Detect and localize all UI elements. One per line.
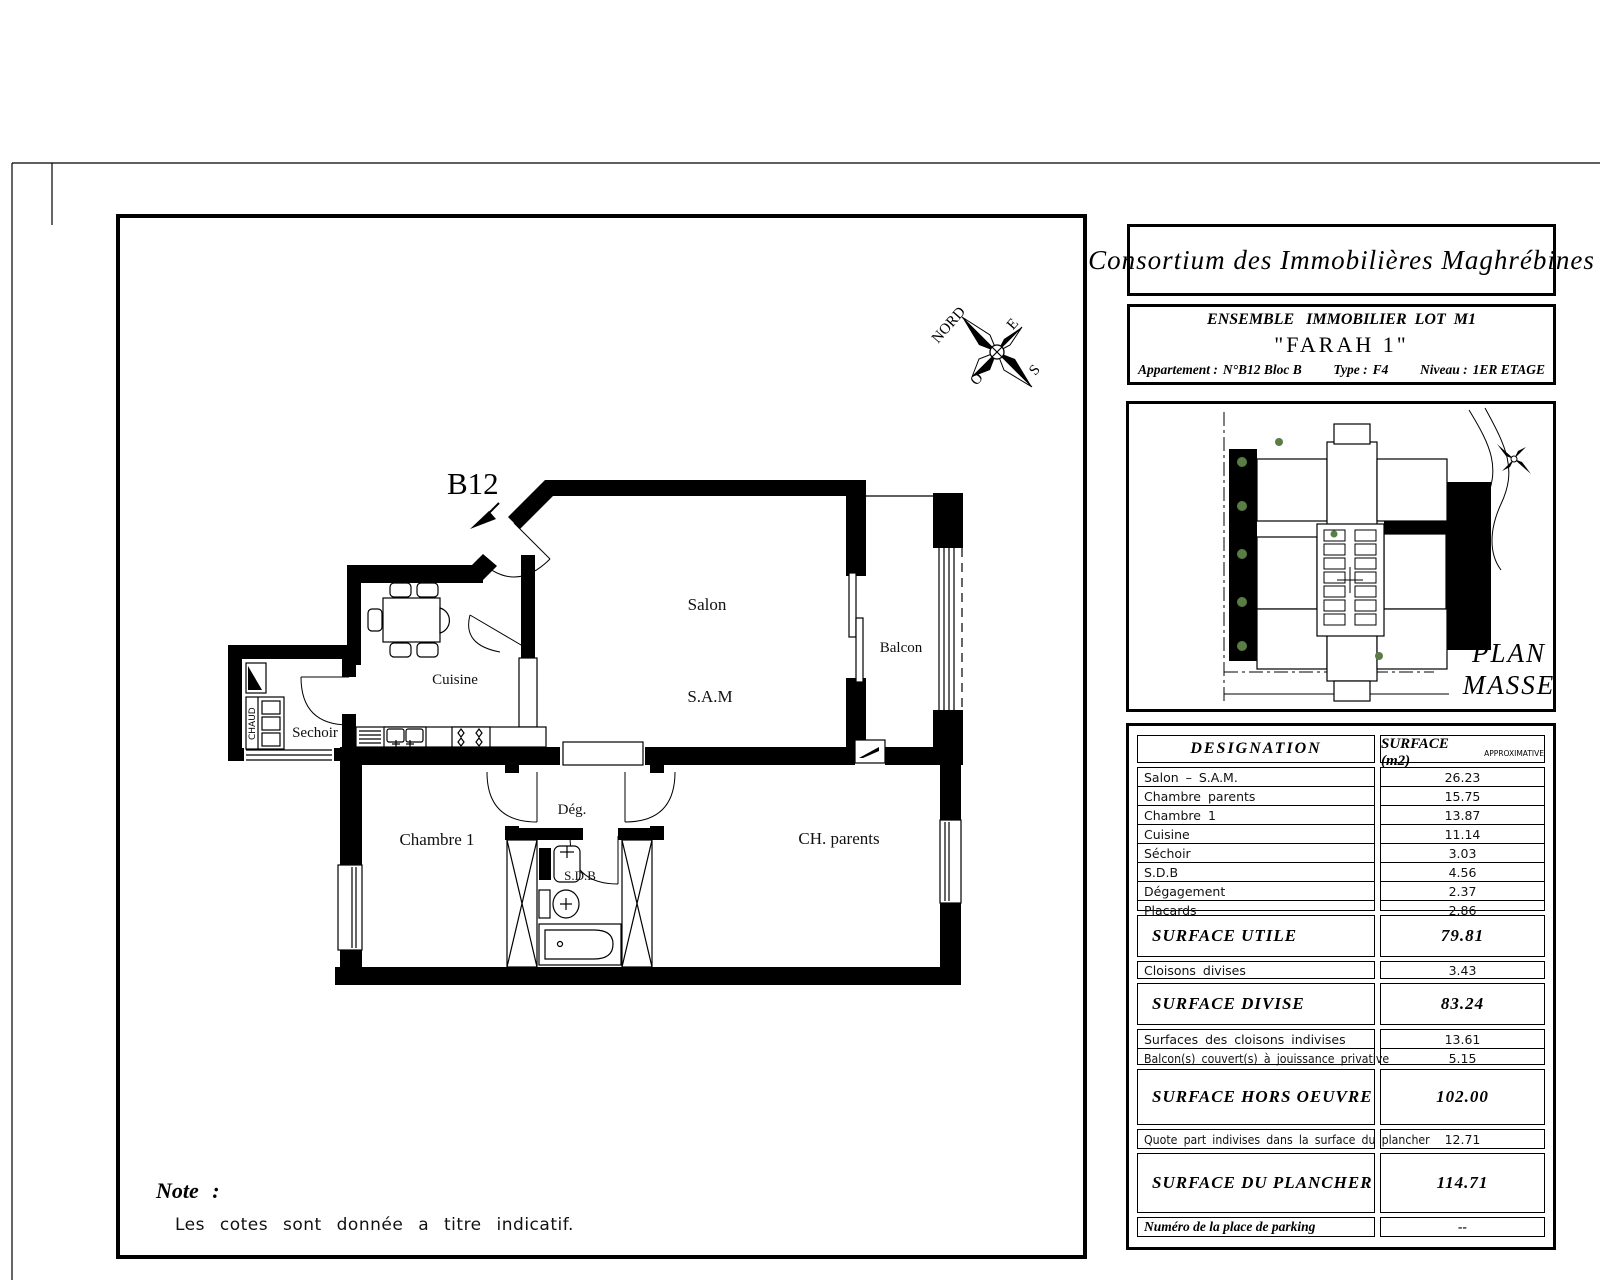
indivises-rows: Surfaces des cloisons indivises Balcon(s… bbox=[1137, 1029, 1545, 1065]
table-row: Surfaces des cloisons indivises bbox=[1138, 1030, 1374, 1048]
project-info-box: ENSEMBLE IMMOBILIER LOT M1 "FARAH 1" App… bbox=[1127, 304, 1556, 385]
room-label-sam: S.A.M bbox=[687, 687, 732, 706]
company-title-box: Consortium des Immobilières Maghrébines bbox=[1127, 224, 1556, 296]
compass-south-label: S bbox=[1026, 362, 1044, 379]
room-label-chambre1: Chambre 1 bbox=[399, 830, 474, 849]
drawing-sheet-page: { "sheet": { "unit_label": "B12", "note"… bbox=[0, 0, 1600, 1280]
unit-label: B12 bbox=[447, 466, 499, 501]
apartment-value: N°B12 Bloc B bbox=[1223, 362, 1302, 377]
site-plan-thumbnail: PLAN MASSE bbox=[1129, 404, 1553, 709]
compass-north-label: NORD bbox=[929, 304, 969, 347]
table-value: 5.15 bbox=[1381, 1048, 1544, 1067]
plan-masse-box: PLAN MASSE bbox=[1126, 401, 1556, 712]
surface-header: SURFACE (m2)APPROXIMATIVE bbox=[1381, 736, 1544, 770]
type-label: Type : bbox=[1333, 362, 1367, 377]
ch-parents-door bbox=[625, 772, 675, 822]
entrance-door bbox=[469, 523, 550, 652]
room-label-degagement: Dég. bbox=[558, 802, 587, 818]
toilet-tank bbox=[539, 890, 550, 918]
parking-row: Numéro de la place de parking -- bbox=[1137, 1217, 1545, 1237]
room-label-balcon: Balcon bbox=[880, 640, 923, 656]
stove bbox=[452, 727, 490, 747]
table-row: Cuisine bbox=[1138, 824, 1374, 843]
room-label-sdb: S.D.B bbox=[564, 868, 596, 883]
table-row: Balcon(s) couvert(s) à jouissance privat… bbox=[1138, 1048, 1374, 1067]
surface-divise-row: SURFACE DIVISE 83.24 bbox=[1137, 983, 1545, 1025]
compass-rose: NORD E O S bbox=[929, 304, 1044, 389]
quote-part-row: Quote part indivises dans la surface du … bbox=[1137, 1129, 1545, 1149]
surface-plancher-row: SURFACE DU PLANCHER 114.71 bbox=[1137, 1153, 1545, 1213]
mini-compass bbox=[1497, 444, 1531, 474]
surface-table: DESIGNATION SURFACE (m2)APPROXIMATIVE Sa… bbox=[1126, 723, 1556, 1250]
designation-header: DESIGNATION bbox=[1138, 736, 1374, 762]
chambre1-door bbox=[487, 772, 537, 822]
chaud-label: CHAUD bbox=[248, 707, 258, 740]
water-heater: CHAUD bbox=[246, 663, 284, 749]
apartment-walls bbox=[228, 480, 963, 985]
table-row: Dégagement bbox=[1138, 881, 1374, 900]
room-surface-rows: Salon – S.A.M. Chambre parents Chambre 1… bbox=[1137, 767, 1545, 911]
balcony-railing bbox=[939, 548, 962, 710]
level-label: Niveau : bbox=[1420, 362, 1468, 377]
apartment-label: Appartement : bbox=[1138, 362, 1218, 377]
kitchen-counter bbox=[356, 727, 546, 748]
bathroom-fixtures bbox=[539, 846, 621, 965]
table-value: 13.87 bbox=[1381, 805, 1544, 824]
room-label-ch-parents: CH. parents bbox=[798, 829, 879, 848]
table-value: 3.03 bbox=[1381, 843, 1544, 862]
table-row: Chambre parents bbox=[1138, 786, 1374, 805]
balcony-threshold bbox=[855, 740, 885, 763]
project-line2: "FARAH 1" bbox=[1138, 332, 1545, 358]
table-value: 15.75 bbox=[1381, 786, 1544, 805]
unit-arrow bbox=[470, 503, 499, 529]
approx-label: APPROXIMATIVE bbox=[1484, 749, 1544, 758]
sechoir-door bbox=[301, 677, 349, 725]
table-row: Séchoir bbox=[1138, 843, 1374, 862]
project-line1: ENSEMBLE IMMOBILIER LOT M1 bbox=[1138, 311, 1545, 329]
table-value: 13.61 bbox=[1381, 1030, 1544, 1048]
apartment-info-row: Appartement :N°B12 Bloc B Type :F4 Nivea… bbox=[1138, 362, 1545, 378]
table-value: 26.23 bbox=[1381, 768, 1544, 786]
room-label-salon: Salon bbox=[688, 595, 727, 614]
plan-masse-title-line1: PLAN bbox=[1471, 638, 1546, 668]
salon-deg-opening bbox=[563, 742, 643, 765]
note-title: Note : bbox=[155, 1178, 220, 1203]
room-label-sechoir: Sechoir bbox=[292, 725, 338, 741]
placard-right bbox=[622, 840, 652, 967]
kitchen-pass-counter bbox=[519, 658, 537, 727]
surface-utile-row: SURFACE UTILE 79.81 bbox=[1137, 915, 1545, 957]
plan-masse-title-line2: MASSE bbox=[1462, 670, 1553, 700]
surface-hors-oeuvre-row: SURFACE HORS OEUVRE 102.00 bbox=[1137, 1069, 1545, 1125]
dining-table bbox=[368, 583, 449, 657]
table-row: Salon – S.A.M. bbox=[1138, 768, 1374, 786]
company-name: Consortium des Immobilières Maghrébines bbox=[1088, 245, 1595, 276]
table-row: Chambre 1 bbox=[1138, 805, 1374, 824]
table-value: 4.56 bbox=[1381, 862, 1544, 881]
balcony-sliding-door bbox=[849, 573, 863, 682]
room-label-cuisine: Cuisine bbox=[432, 672, 478, 688]
type-value: F4 bbox=[1373, 362, 1389, 377]
sechoir-vent-window bbox=[246, 750, 332, 760]
cloisons-row: Cloisons divises 3.43 bbox=[1137, 961, 1545, 979]
compass-west-label: O bbox=[967, 370, 986, 389]
placard-left bbox=[507, 840, 537, 967]
table-header-row: DESIGNATION SURFACE (m2)APPROXIMATIVE bbox=[1137, 735, 1545, 763]
ch-parents-window bbox=[940, 820, 961, 903]
table-value: 2.37 bbox=[1381, 881, 1544, 900]
table-value: 11.14 bbox=[1381, 824, 1544, 843]
note-body: Les cotes sont donnée a titre indicatif. bbox=[175, 1215, 574, 1235]
table-row: S.D.B bbox=[1138, 862, 1374, 881]
chambre1-window bbox=[338, 865, 362, 950]
level-value: 1ER ETAGE bbox=[1473, 362, 1545, 377]
